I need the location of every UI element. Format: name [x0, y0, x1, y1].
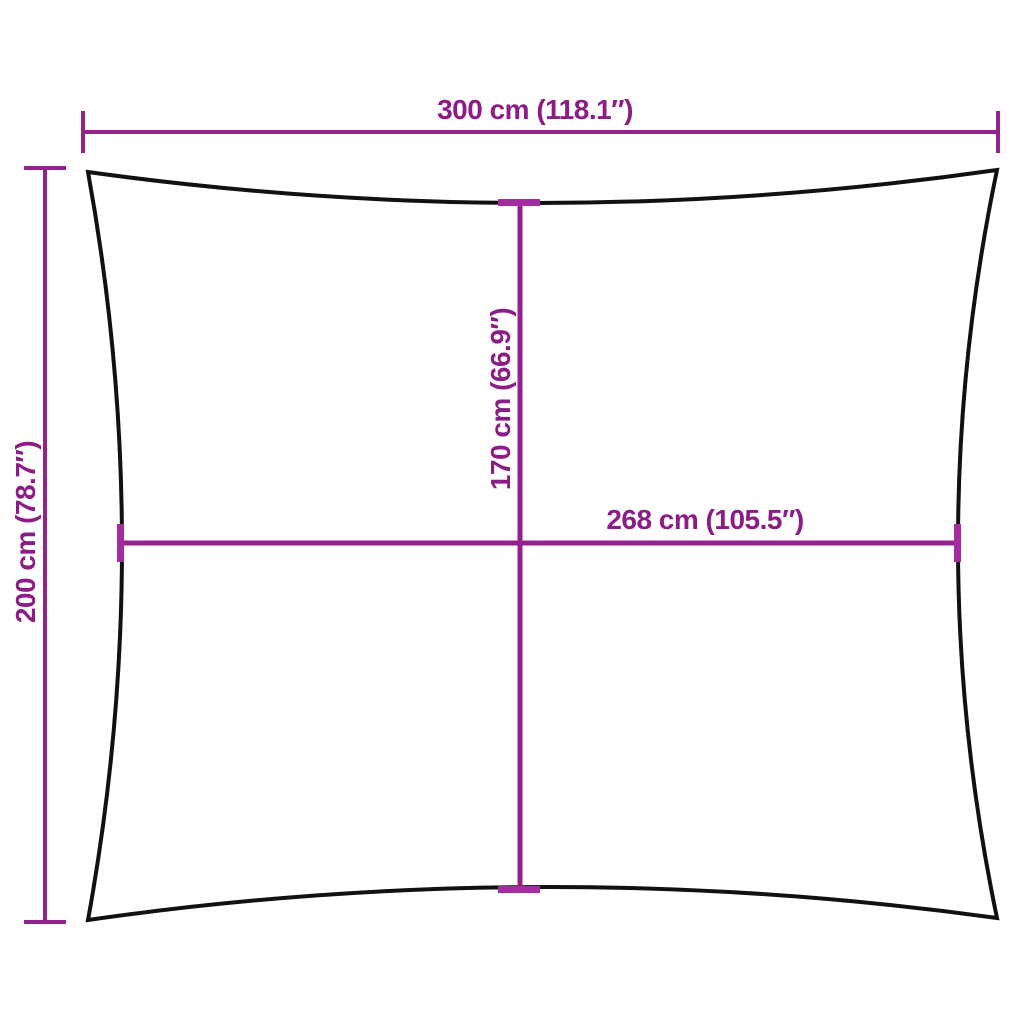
- product-dimension-diagram: 300 cm (118.1″) 200 cm (78.7″) 170 cm (6…: [0, 0, 1024, 1024]
- width-dimension-label: 300 cm (118.1″): [437, 94, 633, 126]
- inner-width-dimension-label: 268 cm (105.5″): [606, 504, 803, 536]
- inner-height-dimension-label: 170 cm (66.9″): [485, 308, 517, 490]
- height-dimension-label: 200 cm (78.7″): [10, 441, 42, 623]
- shade-sail-drawing: [0, 0, 1024, 1024]
